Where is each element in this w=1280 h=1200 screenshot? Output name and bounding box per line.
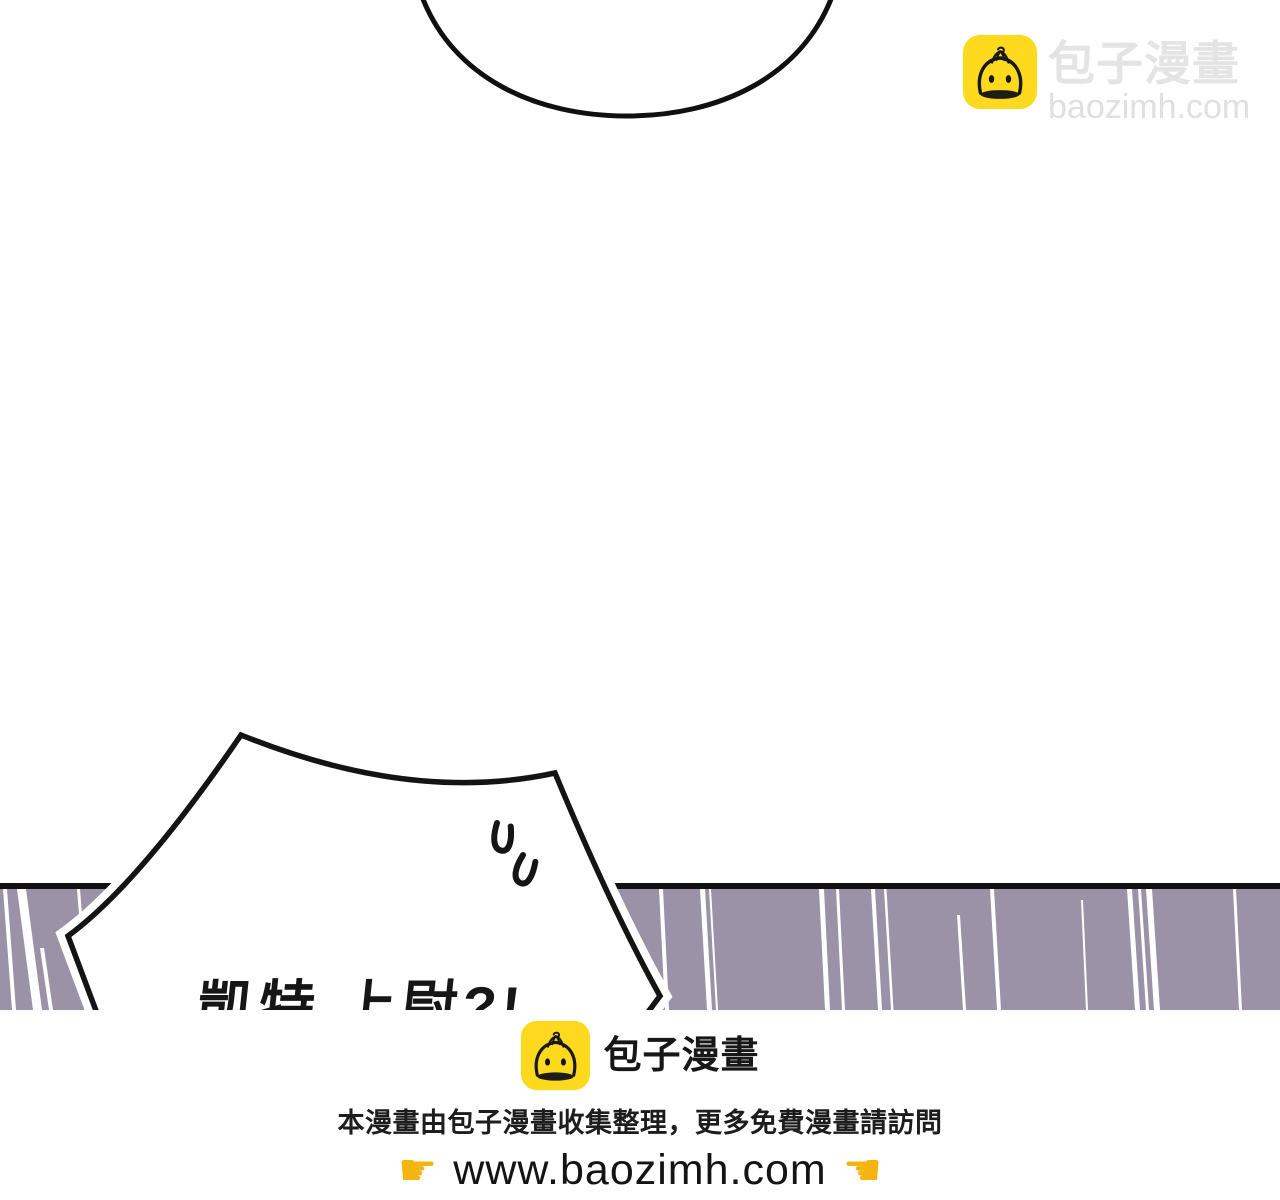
footer-logo: 包子漫畫 (520, 1020, 759, 1091)
footer-notice: 本漫畫由包子漫畫收集整理，更多免費漫畫請訪問 (338, 1108, 943, 1139)
speech-bubble-text: 凱特 上尉?! (194, 962, 530, 1010)
comic-panel: 凱特 上尉?! (0, 0, 1280, 1010)
top-bubble-arc (421, 0, 833, 116)
page: 凱特 上尉?! 包子漫畫 baozimh.com 包子漫畫 本漫畫由包子漫畫收集… (0, 0, 1280, 1200)
footer-url-row: ☛ www.baozimh.com ☚ (398, 1147, 882, 1194)
footer-url: www.baozimh.com (453, 1147, 826, 1194)
footer-brand-name: 包子漫畫 (603, 1037, 759, 1075)
watermark-domain: baozimh.com (1048, 90, 1250, 124)
watermark-brand-name: 包子漫畫 (1048, 40, 1240, 87)
pointing-left-hand-icon: ☚ (843, 1149, 882, 1193)
comic-artwork (0, 0, 1280, 1010)
pointing-right-hand-icon: ☛ (398, 1149, 437, 1193)
footer: 包子漫畫 本漫畫由包子漫畫收集整理，更多免費漫畫請訪問 ☛ www.baozim… (0, 1010, 1280, 1200)
brand-watermark: 包子漫畫 baozimh.com (962, 34, 1262, 118)
baozi-bun-icon (520, 1020, 591, 1091)
baozi-bun-icon (962, 34, 1038, 110)
